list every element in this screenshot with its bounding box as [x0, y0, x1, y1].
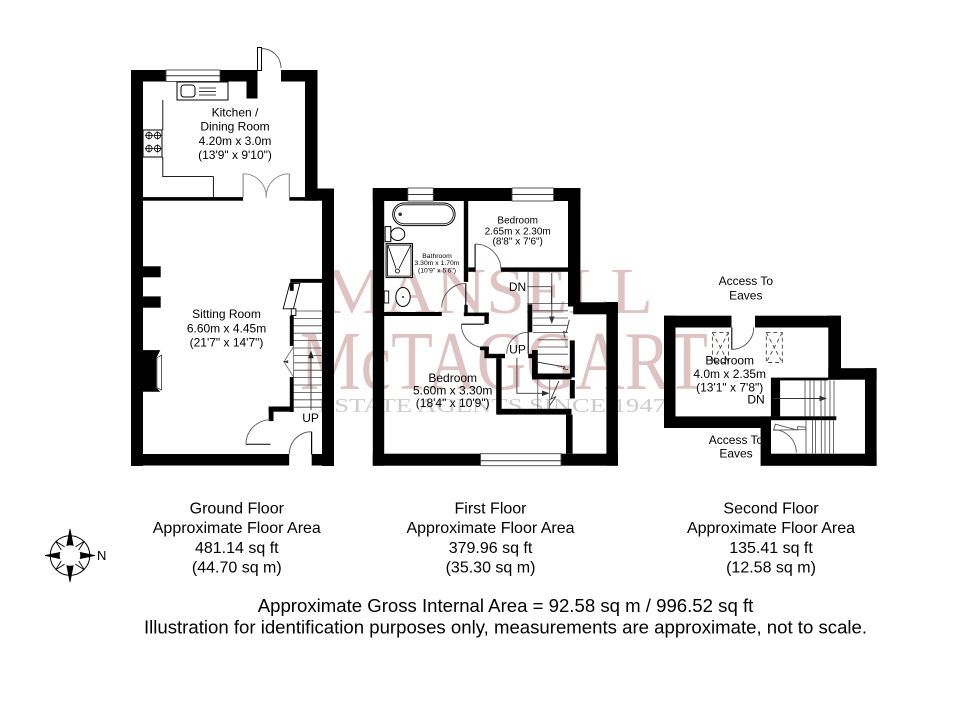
- svg-text:Approximate Floor Area: Approximate Floor Area: [687, 520, 855, 537]
- svg-text:4.20m x 3.0m: 4.20m x 3.0m: [199, 134, 272, 148]
- svg-text:DN: DN: [747, 393, 764, 407]
- svg-text:(12.58 sq m): (12.58 sq m): [726, 560, 816, 577]
- svg-text:First Floor: First Floor: [455, 501, 528, 518]
- svg-text:Bedroom: Bedroom: [705, 353, 754, 367]
- svg-text:(35.30 sq m): (35.30 sq m): [446, 560, 536, 577]
- svg-text:N: N: [97, 548, 106, 563]
- svg-text:Kitchen /: Kitchen /: [212, 105, 259, 119]
- svg-text:Eaves: Eaves: [719, 447, 752, 461]
- svg-text:3.30m x 1.70m: 3.30m x 1.70m: [415, 260, 460, 267]
- svg-text:Eaves: Eaves: [729, 288, 762, 302]
- svg-text:Sitting Room: Sitting Room: [192, 307, 261, 321]
- svg-text:Dining Room: Dining Room: [200, 120, 269, 134]
- svg-text:6.60m x 4.45m: 6.60m x 4.45m: [187, 321, 266, 335]
- svg-text:(44.70 sq m): (44.70 sq m): [192, 560, 282, 577]
- svg-text:Access To: Access To: [719, 274, 774, 288]
- svg-text:(21'7" x 14'7"): (21'7" x 14'7"): [190, 335, 264, 349]
- svg-text:DN: DN: [509, 280, 526, 294]
- svg-text:379.96 sq ft: 379.96 sq ft: [449, 540, 533, 557]
- svg-text:Approximate Floor Area: Approximate Floor Area: [153, 520, 321, 537]
- svg-text:(13'9" x 9'10"): (13'9" x 9'10"): [198, 148, 272, 162]
- svg-text:Bedroom: Bedroom: [497, 216, 538, 227]
- svg-text:Approximate Gross Internal Are: Approximate Gross Internal Area = 92.58 …: [258, 595, 754, 616]
- svg-text:Ground Floor: Ground Floor: [190, 501, 285, 518]
- svg-text:(10'9" x 5'6"): (10'9" x 5'6"): [418, 267, 456, 274]
- svg-text:135.41 sq ft: 135.41 sq ft: [729, 540, 813, 557]
- svg-text:Second Floor: Second Floor: [723, 501, 819, 518]
- svg-text:UP: UP: [509, 342, 526, 356]
- svg-text:UP: UP: [302, 411, 319, 425]
- svg-text:(18'4" x 10'9"): (18'4" x 10'9"): [416, 396, 490, 410]
- svg-text:Illustration for identificatio: Illustration for identification purposes…: [144, 617, 867, 638]
- svg-text:Approximate Floor Area: Approximate Floor Area: [406, 520, 574, 537]
- svg-text:Bathroom: Bathroom: [422, 253, 452, 260]
- svg-text:Access To: Access To: [709, 433, 764, 447]
- svg-text:481.14 sq ft: 481.14 sq ft: [195, 540, 279, 557]
- svg-text:(8'8" x 7'6"): (8'8" x 7'6"): [493, 237, 543, 248]
- svg-text:4.0m x 2.35m: 4.0m x 2.35m: [693, 367, 766, 381]
